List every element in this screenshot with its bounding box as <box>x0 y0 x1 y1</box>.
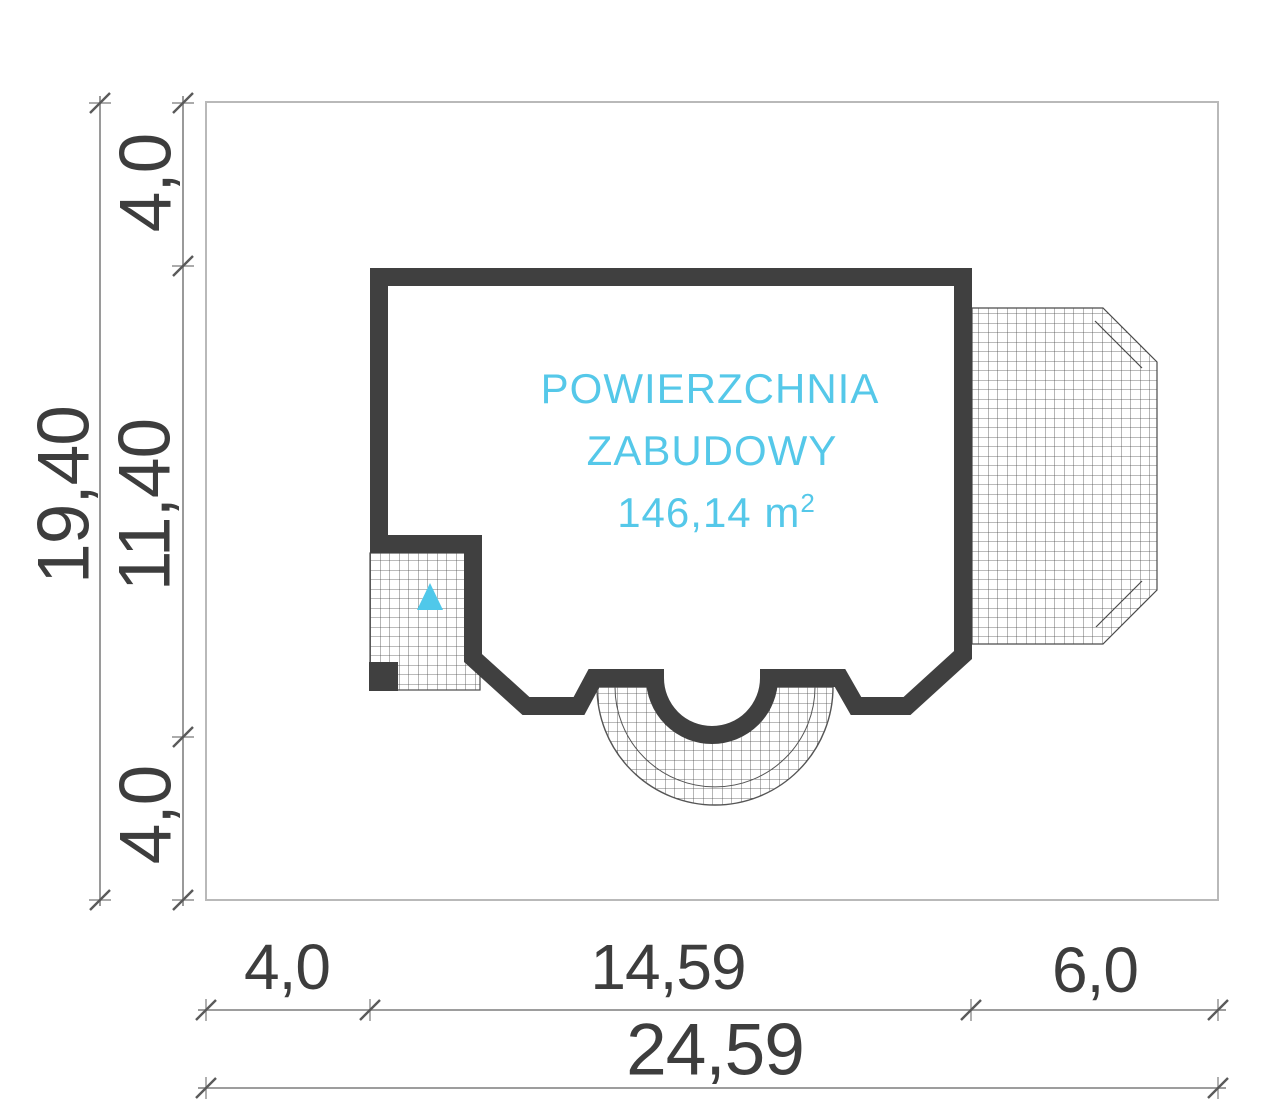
dim-label-left-total: 19,40 <box>28 406 101 584</box>
site-plan-drawing: 19,40 4,0 11,40 4,0 4,0 14,59 6,0 24,59 … <box>0 0 1280 1117</box>
area-value-line: 146,14 m2 <box>617 490 815 534</box>
dim-label-bottom-right: 6,0 <box>1052 938 1138 1002</box>
east-terrace-hatch <box>972 308 1157 644</box>
area-label-line1: POWIERZCHNIA <box>541 368 880 410</box>
area-label-line2: ZABUDOWY <box>587 430 838 472</box>
dim-label-bottom-total: 24,59 <box>626 1014 804 1087</box>
dim-label-bottom-left: 4,0 <box>244 935 330 999</box>
area-value: 146,14 <box>617 489 751 536</box>
dim-label-bottom-middle: 14,59 <box>590 935 745 999</box>
area-exponent: 2 <box>800 488 814 518</box>
area-unit: m <box>764 489 800 536</box>
dim-label-left-middle: 11,40 <box>109 419 182 591</box>
dim-label-left-bottom: 4,0 <box>110 766 183 864</box>
entrance-pillar <box>369 662 398 691</box>
dim-label-left-top: 4,0 <box>110 134 183 232</box>
